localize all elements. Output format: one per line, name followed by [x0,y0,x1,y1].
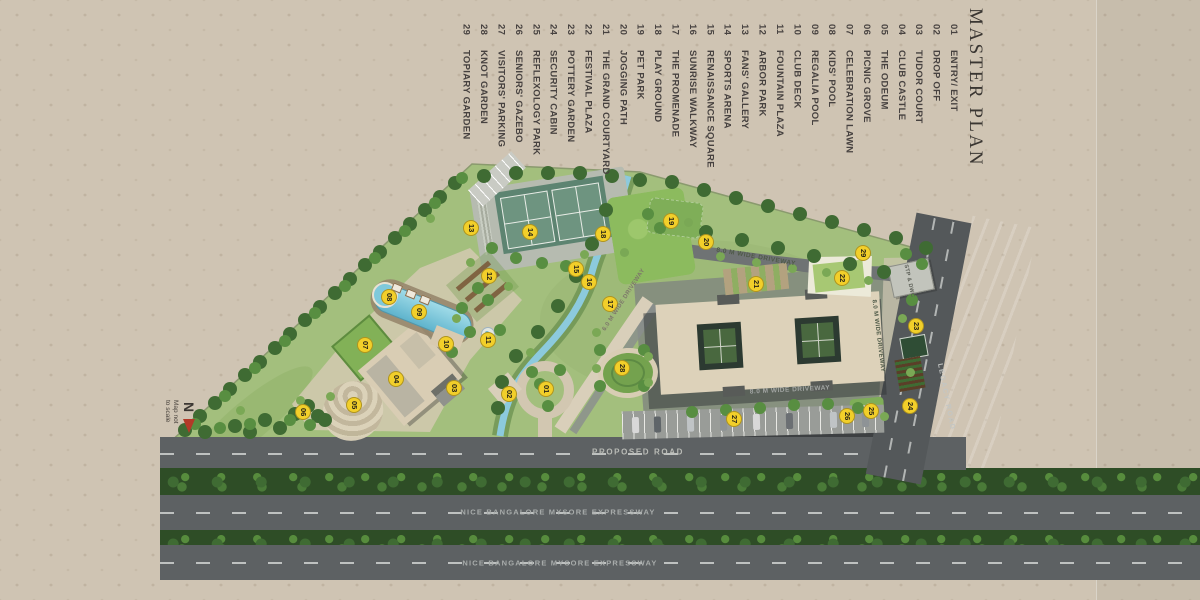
map-badge-21: 21 [748,276,764,292]
legend-item-02: 02DROP OFF [927,8,944,206]
map-scale-note: Map notto scale [163,400,179,452]
map-badge-20: 20 [698,234,714,250]
legend-item-04: 04CLUB CASTLE [892,8,909,206]
master-plan-canvas: N Map notto scale MASTER PLAN 01ENTRY/ E… [0,0,1200,600]
map-badge-12: 12 [481,268,497,284]
compass-north-letter: N [181,402,197,412]
legend-item-12: 12ARBOR PARK [753,8,770,206]
map-badge-07: 07 [357,337,373,353]
map-badge-14: 14 [522,224,538,240]
legend-item-19: 19PET PARK [631,8,648,206]
legend-item-23: 23POTTERY GARDEN [562,8,579,206]
legend-item-14: 14SPORTS ARENA [718,8,735,206]
map-label-1: NICE BANGALORE MYSORE EXPRESSWAY [460,508,655,517]
map-badge-26: 26 [839,408,855,424]
map-badge-09: 09 [411,304,427,320]
legend-item-26: 26SENIORS' GAZEBO [509,8,526,206]
map-badge-25: 25 [863,403,879,419]
map-badge-24: 24 [902,398,918,414]
legend-item-20: 20JOGGING PATH [614,8,631,206]
legend-item-07: 07CELEBRATION LAWN [840,8,857,206]
map-badge-04: 04 [388,371,404,387]
map-badge-23: 23 [908,318,924,334]
legend-item-03: 03TUDOR COURT [910,8,927,206]
map-badge-01: 01 [538,381,554,397]
map-label-0: PROPOSED ROAD [592,448,684,457]
map-badge-27: 27 [726,411,742,427]
map-badge-19: 19 [663,213,679,229]
legend-item-17: 17THE PROMENADE [666,8,683,206]
legend-item-18: 18PLAY GROUND [649,8,666,206]
map-badge-03: 03 [446,380,462,396]
legend-item-25: 25REFLEXOLOGY PARK [527,8,544,206]
fans-gallery-steps [477,198,495,255]
north-arrow-icon [183,419,195,433]
tower-courtyard-1 [697,322,744,371]
page-title: MASTER PLAN [962,8,988,206]
map-badge-02: 02 [501,386,517,402]
legend-item-27: 27VISITORS' PARKING [492,8,509,206]
legend-item-29: 29TOPIARY GARDEN [457,8,474,206]
legend: MASTER PLAN 01ENTRY/ EXIT02DROP OFF03TUD… [457,8,988,206]
residential-tower [655,291,884,395]
legend-item-06: 06PICNIC GROVE [858,8,875,206]
legend-item-01: 01ENTRY/ EXIT [945,8,962,206]
map-badge-13: 13 [463,220,479,236]
map-badge-28: 28 [614,360,630,376]
map-badge-11: 11 [480,332,496,348]
expressway-carriageway-1 [160,495,1200,530]
map-badge-05: 05 [346,397,362,413]
roadside-tree-band [160,468,1200,495]
legend-item-15: 15RENAISSANCE SQUARE [701,8,718,206]
legend-item-08: 08KIDS' POOL [823,8,840,206]
map-badge-22: 22 [834,270,850,286]
legend-item-21: 21THE GRAND COURTYARD [596,8,613,206]
map-badge-06: 06 [295,404,311,420]
legend-item-05: 05THE ODEUM [875,8,892,206]
legend-item-16: 16SUNRISE WALKWAY [684,8,701,206]
pottery-garden-beds [894,356,925,392]
map-badge-29: 29 [855,245,871,261]
legend-item-24: 24SECURITY CABIN [544,8,561,206]
legend-item-22: 22FESTIVAL PLAZA [579,8,596,206]
expressway-carriageway-2 [160,545,1200,580]
map-label-2: NICE BANGALORE MYSORE EXPRESSWAY [462,559,657,568]
legend-item-28: 28KNOT GARDEN [475,8,492,206]
tower-courtyard-2 [795,316,842,365]
legend-item-11: 11FOUNTAIN PLAZA [771,8,788,206]
map-badge-10: 10 [438,336,454,352]
map-badge-15: 15 [568,261,584,277]
proposed-road [160,437,960,470]
map-badge-08: 08 [381,289,397,305]
map-badge-18: 18 [595,226,611,242]
legend-item-10: 10CLUB DECK [788,8,805,206]
legend-item-13: 13FANS' GALLERY [736,8,753,206]
expressway-median [160,530,1200,545]
map-badge-16: 16 [581,274,597,290]
legend-item-09: 09REGALIA POOL [805,8,822,206]
